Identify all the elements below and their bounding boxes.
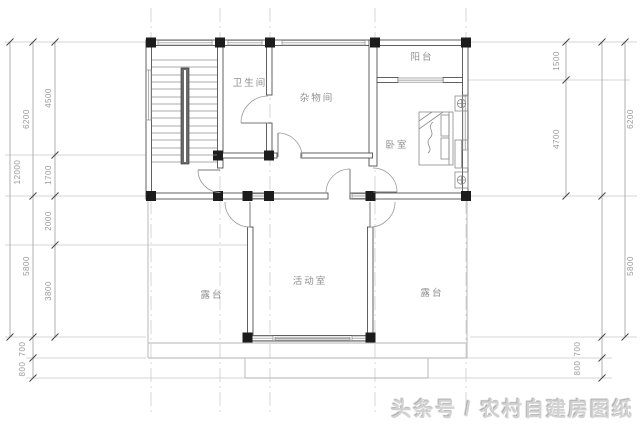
room-label-activity: 活动室: [293, 275, 328, 287]
bed-furniture: [419, 96, 468, 188]
dim-left-6200: 6200: [22, 109, 31, 129]
wall-balcony-stub-left: [377, 78, 398, 83]
door-activity: [326, 169, 350, 193]
room-label-bathroom: 卫生间: [233, 77, 268, 89]
dim-left-12000: 12000: [13, 160, 22, 185]
door-bathroom: [241, 96, 268, 123]
windows: [146, 41, 467, 341]
stairs: [152, 60, 217, 164]
door-terrace-left: [225, 202, 250, 227]
door-bedroom: [373, 168, 397, 192]
watermark-text: 头条号 / 农村自建房图纸: [391, 393, 634, 422]
grid-lines: [151, 8, 466, 412]
dim-left-2000: 2000: [44, 211, 53, 231]
dim-right-800: 800: [573, 361, 582, 376]
room-label-bedroom: 卧室: [385, 139, 408, 151]
dim-left-4500: 4500: [44, 88, 53, 108]
dim-right-4700: 4700: [552, 129, 561, 149]
wall-middle-left: [146, 193, 328, 199]
dim-right-6200: 6200: [626, 109, 635, 129]
dim-left-5800: 5800: [22, 256, 31, 276]
room-label-terrace-left: 露台: [200, 289, 223, 301]
terrace-steps-outline: [148, 199, 467, 378]
floor-plan-image: 4500 1700 2000 3800 6200 5800 12000 700 …: [0, 0, 640, 425]
wall-corridor-north-right: [301, 153, 373, 158]
dim-left-700: 700: [18, 342, 27, 357]
door-terrace-right: [370, 202, 395, 227]
floor-plan-drawing: 4500 1700 2000 3800 6200 5800 12000 700 …: [0, 0, 640, 425]
quilt-sketch: [428, 122, 433, 153]
room-labels: 卫生间 杂物间 阳台 卧室 活动室 露台 露台: [200, 51, 443, 301]
wall-activity-west: [248, 227, 254, 341]
dim-left-800: 800: [18, 362, 27, 377]
wall-balcony-stub-right: [443, 78, 463, 83]
dim-left-1700: 1700: [44, 165, 53, 185]
pillow: [441, 138, 449, 159]
door-storage: [278, 133, 302, 157]
wall-stair-east: [218, 40, 224, 168]
dim-right-1500: 1500: [552, 51, 561, 71]
pillow: [441, 115, 449, 136]
dim-right-5800: 5800: [626, 256, 635, 276]
room-label-balcony: 阳台: [410, 51, 433, 63]
dimension-ticks: [7, 39, 629, 382]
wall-bathroom-east-upper: [267, 40, 273, 95]
door-stairhall: [198, 170, 221, 193]
wall-bedroom-west-upper: [369, 40, 377, 166]
blanket-fold: [419, 112, 443, 129]
dim-left-3800: 3800: [44, 281, 53, 301]
doors: [198, 96, 397, 227]
room-label-storage: 杂物间: [300, 92, 335, 104]
dim-right-700: 700: [573, 342, 582, 357]
wall-activity-east: [368, 227, 374, 341]
room-label-terrace-right: 露台: [420, 287, 443, 299]
bed: [419, 112, 453, 165]
